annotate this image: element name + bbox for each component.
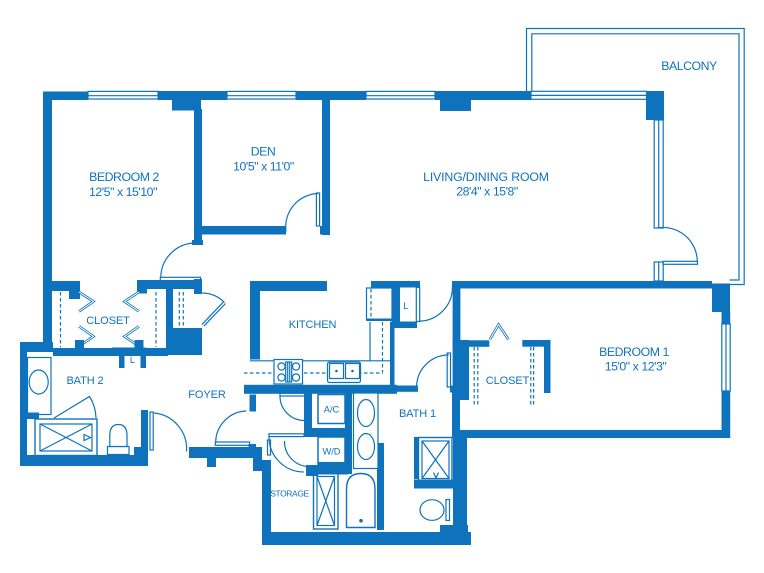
svg-text:CLOSET: CLOSET [486,375,530,387]
svg-text:DEN: DEN [251,145,276,159]
svg-text:15'0" x 12'3": 15'0" x 12'3" [605,360,667,374]
svg-text:L: L [403,301,408,311]
svg-text:BATH 1: BATH 1 [399,408,436,420]
svg-text:W/D: W/D [322,447,340,457]
svg-text:LIVING/DINING ROOM: LIVING/DINING ROOM [423,170,549,184]
svg-text:BEDROOM 2: BEDROOM 2 [89,170,159,184]
svg-text:FOYER: FOYER [188,389,226,401]
svg-text:BEDROOM 1: BEDROOM 1 [599,345,669,359]
svg-text:KITCHEN: KITCHEN [289,319,337,331]
svg-text:BALCONY: BALCONY [661,59,717,73]
svg-text:10'5" x 11'0": 10'5" x 11'0" [233,160,294,174]
svg-text:BATH 2: BATH 2 [66,375,103,387]
svg-text:28'4" x 15'8": 28'4" x 15'8" [456,185,518,199]
svg-text:12'5" x 15'10": 12'5" x 15'10" [89,185,157,199]
svg-text:CLOSET: CLOSET [86,315,130,327]
svg-text:L: L [130,355,135,365]
svg-text:A/C: A/C [324,405,340,415]
svg-text:STORAGE: STORAGE [270,489,309,499]
